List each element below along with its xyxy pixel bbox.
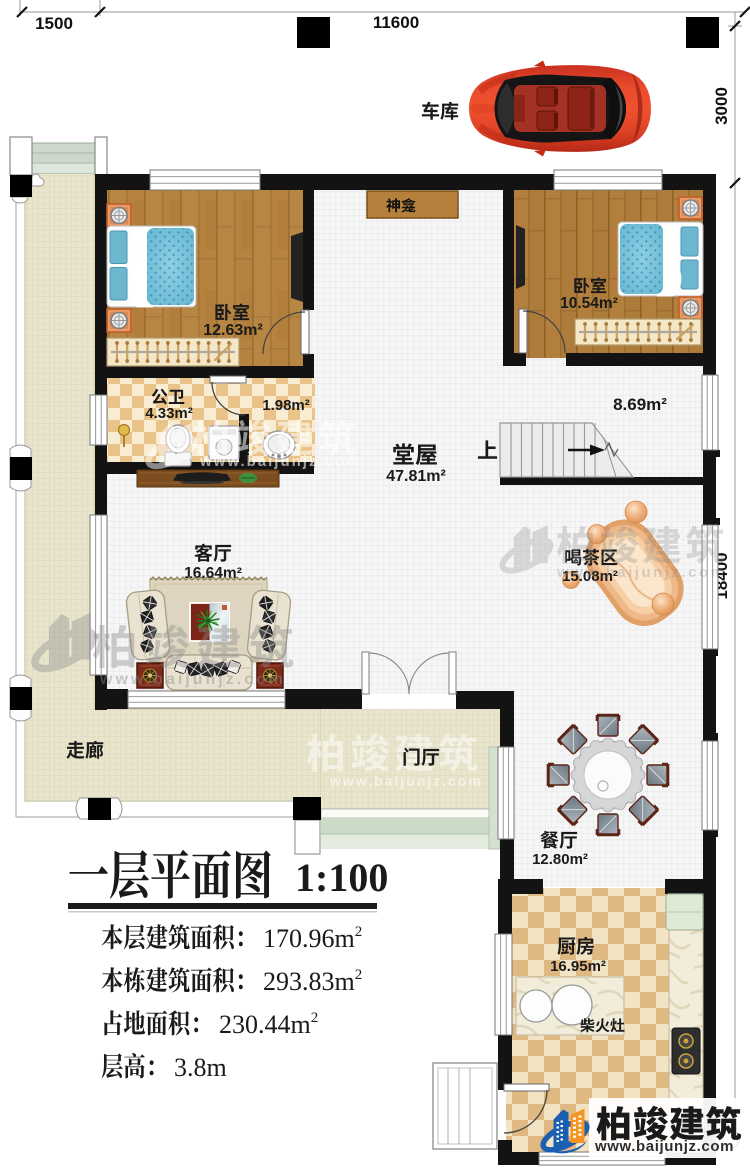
- svg-text:293.83m2: 293.83m2: [263, 967, 362, 996]
- svg-text:1500: 1500: [35, 14, 73, 33]
- svg-text:4.33m²: 4.33m²: [145, 405, 193, 422]
- svg-text:www.baijunjz.com: www.baijunjz.com: [594, 1138, 734, 1155]
- svg-text:1:100: 1:100: [295, 855, 388, 900]
- svg-text:3000: 3000: [712, 87, 731, 125]
- svg-text:www.baijunjz.com: www.baijunjz.com: [199, 453, 361, 470]
- svg-text:12.63m²: 12.63m²: [203, 322, 263, 339]
- svg-text:www.baijunjz.com: www.baijunjz.com: [99, 671, 286, 688]
- svg-text:www.baijunjz.com: www.baijunjz.com: [329, 773, 483, 789]
- svg-text:16.95m²: 16.95m²: [550, 958, 606, 975]
- svg-text:www.baijunjz.com: www.baijunjz.com: [556, 564, 726, 581]
- svg-text:1.98m²: 1.98m²: [262, 397, 310, 414]
- svg-text:170.96m2: 170.96m2: [263, 924, 362, 953]
- svg-text:230.44m2: 230.44m2: [219, 1010, 318, 1039]
- svg-text:47.81m²: 47.81m²: [386, 468, 446, 485]
- svg-text:10.54m²: 10.54m²: [560, 295, 618, 312]
- svg-text:11600: 11600: [373, 13, 419, 32]
- svg-text:12.80m²: 12.80m²: [532, 851, 588, 868]
- svg-text:3.8m: 3.8m: [174, 1053, 227, 1082]
- svg-text:8.69m²: 8.69m²: [613, 395, 667, 414]
